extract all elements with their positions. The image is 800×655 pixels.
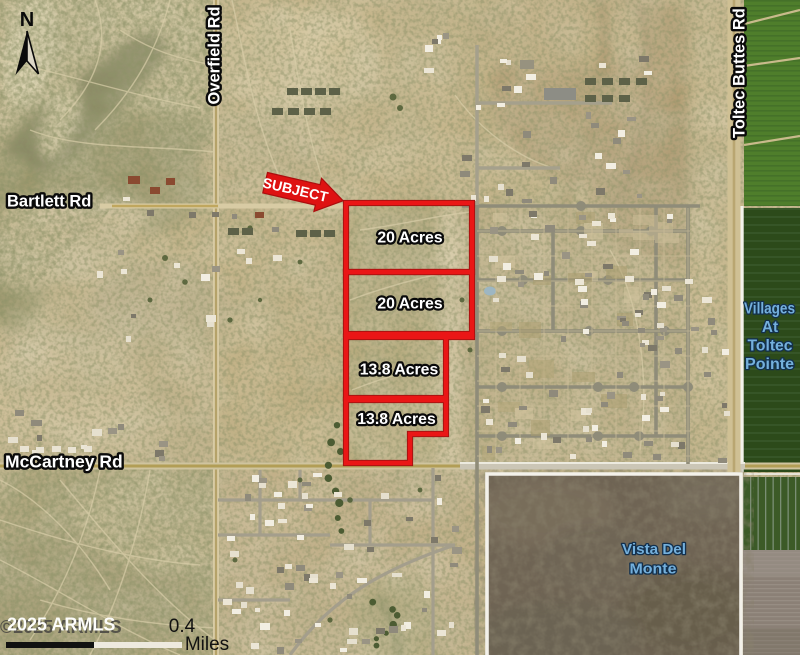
svg-text:13.8 Acres: 13.8 Acres (360, 361, 439, 378)
svg-text:At: At (762, 319, 778, 336)
svg-text:Monte: Monte (630, 561, 677, 578)
svg-text:20 Acres: 20 Acres (377, 230, 443, 247)
svg-text:Pointe: Pointe (745, 356, 794, 373)
svg-text:Toltec Buttes Rd: Toltec Buttes Rd (731, 8, 749, 138)
svg-text:N: N (20, 9, 34, 31)
svg-text:Vista Del: Vista Del (622, 541, 686, 558)
svg-text:2025 ARMLS: 2025 ARMLS (7, 615, 115, 635)
svg-text:Bartlett Rd: Bartlett Rd (7, 193, 91, 211)
svg-text:Toltec: Toltec (748, 338, 793, 355)
svg-text:Miles: Miles (185, 634, 229, 655)
svg-text:Overfield Rd: Overfield Rd (206, 6, 224, 104)
svg-text:Villages: Villages (744, 301, 795, 318)
svg-text:20 Acres: 20 Acres (377, 296, 443, 313)
svg-text:13.8 Acres: 13.8 Acres (357, 411, 436, 428)
svg-text:McCartney Rd: McCartney Rd (5, 452, 123, 472)
